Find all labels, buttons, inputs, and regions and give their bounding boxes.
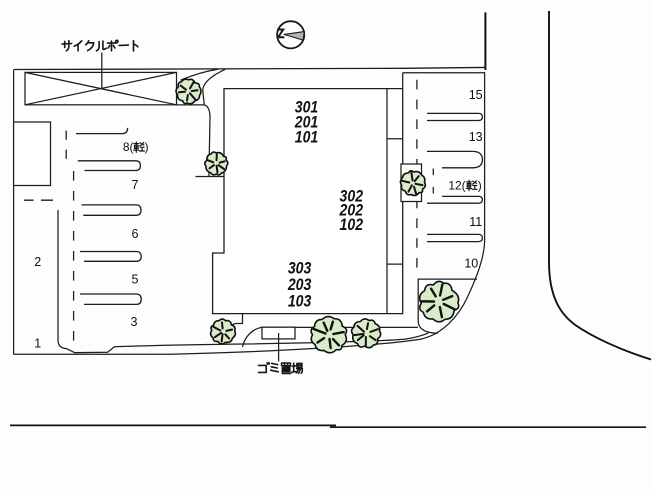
- svg-text:11: 11: [469, 215, 482, 229]
- svg-text:6: 6: [132, 227, 139, 241]
- svg-text:1: 1: [34, 336, 41, 350]
- svg-text:): ): [145, 140, 149, 154]
- svg-text:10: 10: [464, 256, 478, 270]
- svg-text:103: 103: [288, 293, 312, 311]
- svg-text:203: 203: [287, 276, 311, 294]
- svg-text:3: 3: [131, 315, 138, 329]
- svg-text:): ): [478, 178, 482, 192]
- svg-text:7: 7: [132, 178, 139, 192]
- svg-text:15: 15: [469, 88, 483, 102]
- svg-text:5: 5: [132, 272, 139, 286]
- svg-text:303: 303: [288, 260, 312, 278]
- svg-text:8(: 8(: [123, 140, 134, 154]
- svg-text:12(: 12(: [448, 178, 465, 192]
- svg-text:13: 13: [469, 130, 483, 144]
- svg-text:101: 101: [295, 129, 319, 147]
- svg-text:2: 2: [34, 255, 41, 269]
- svg-text:102: 102: [340, 216, 364, 234]
